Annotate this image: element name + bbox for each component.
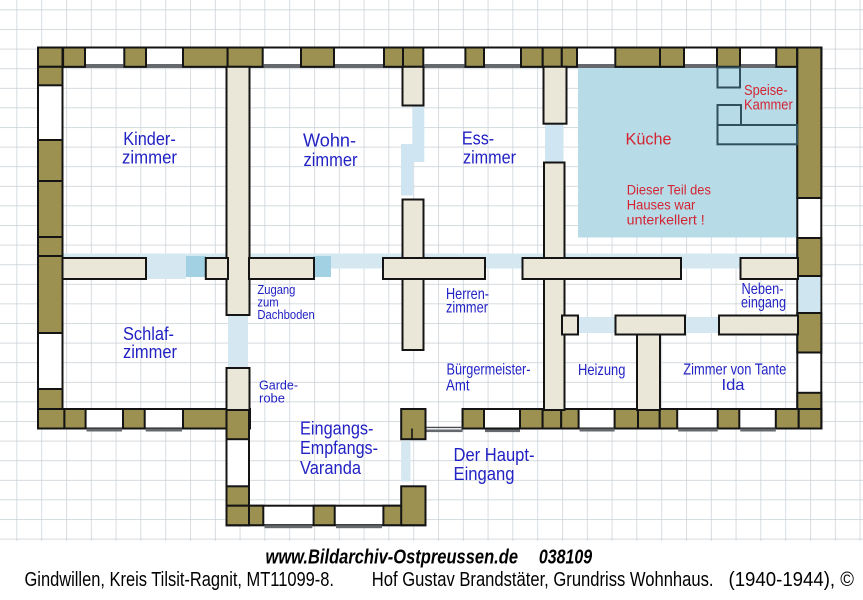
svg-text:Hauses war: Hauses war bbox=[627, 197, 696, 213]
svg-text:Ida: Ida bbox=[722, 377, 745, 394]
svg-text:zimmer: zimmer bbox=[123, 341, 177, 362]
svg-text:Hof Gustav Brandstäter, Grundr: Hof Gustav Brandstäter, Grundriss Wohnha… bbox=[372, 569, 714, 591]
svg-text:Bürgermeister-: Bürgermeister- bbox=[447, 362, 531, 379]
svg-text:Eingangs-: Eingangs- bbox=[300, 418, 374, 438]
svg-text:Kammer: Kammer bbox=[744, 96, 793, 113]
svg-text:Amt: Amt bbox=[446, 378, 470, 395]
svg-text:zimmer: zimmer bbox=[446, 300, 489, 317]
svg-text:Wohn-: Wohn- bbox=[303, 130, 356, 151]
svg-text:zimmer: zimmer bbox=[463, 147, 516, 168]
svg-text:zimmer: zimmer bbox=[304, 149, 358, 170]
svg-text:Gindwillen, Kreis Tilsit-Ragni: Gindwillen, Kreis Tilsit-Ragnit, MT11099… bbox=[25, 569, 335, 591]
svg-text:Küche: Küche bbox=[626, 130, 672, 149]
svg-text:Dachboden: Dachboden bbox=[257, 307, 314, 322]
svg-text:Varanda: Varanda bbox=[300, 458, 362, 478]
svg-text:Empfangs-: Empfangs- bbox=[300, 438, 378, 458]
svg-text:eingang: eingang bbox=[741, 295, 786, 312]
svg-text:Ess-: Ess- bbox=[462, 127, 494, 148]
svg-text:unterkellert !: unterkellert ! bbox=[627, 212, 705, 228]
svg-text:Eingang: Eingang bbox=[454, 464, 515, 484]
svg-text:Der Haupt-: Der Haupt- bbox=[454, 445, 535, 465]
svg-text:robe: robe bbox=[259, 391, 285, 406]
svg-text:(1940-1944), ©: (1940-1944), © bbox=[729, 569, 855, 591]
svg-text:Dieser Teil des: Dieser Teil des bbox=[627, 182, 711, 198]
svg-text:038109: 038109 bbox=[539, 546, 593, 569]
svg-text:zimmer: zimmer bbox=[122, 147, 177, 168]
svg-text:Heizung: Heizung bbox=[578, 362, 625, 379]
svg-text:www.Bildarchiv-Ostpreussen.de: www.Bildarchiv-Ostpreussen.de bbox=[266, 546, 519, 569]
